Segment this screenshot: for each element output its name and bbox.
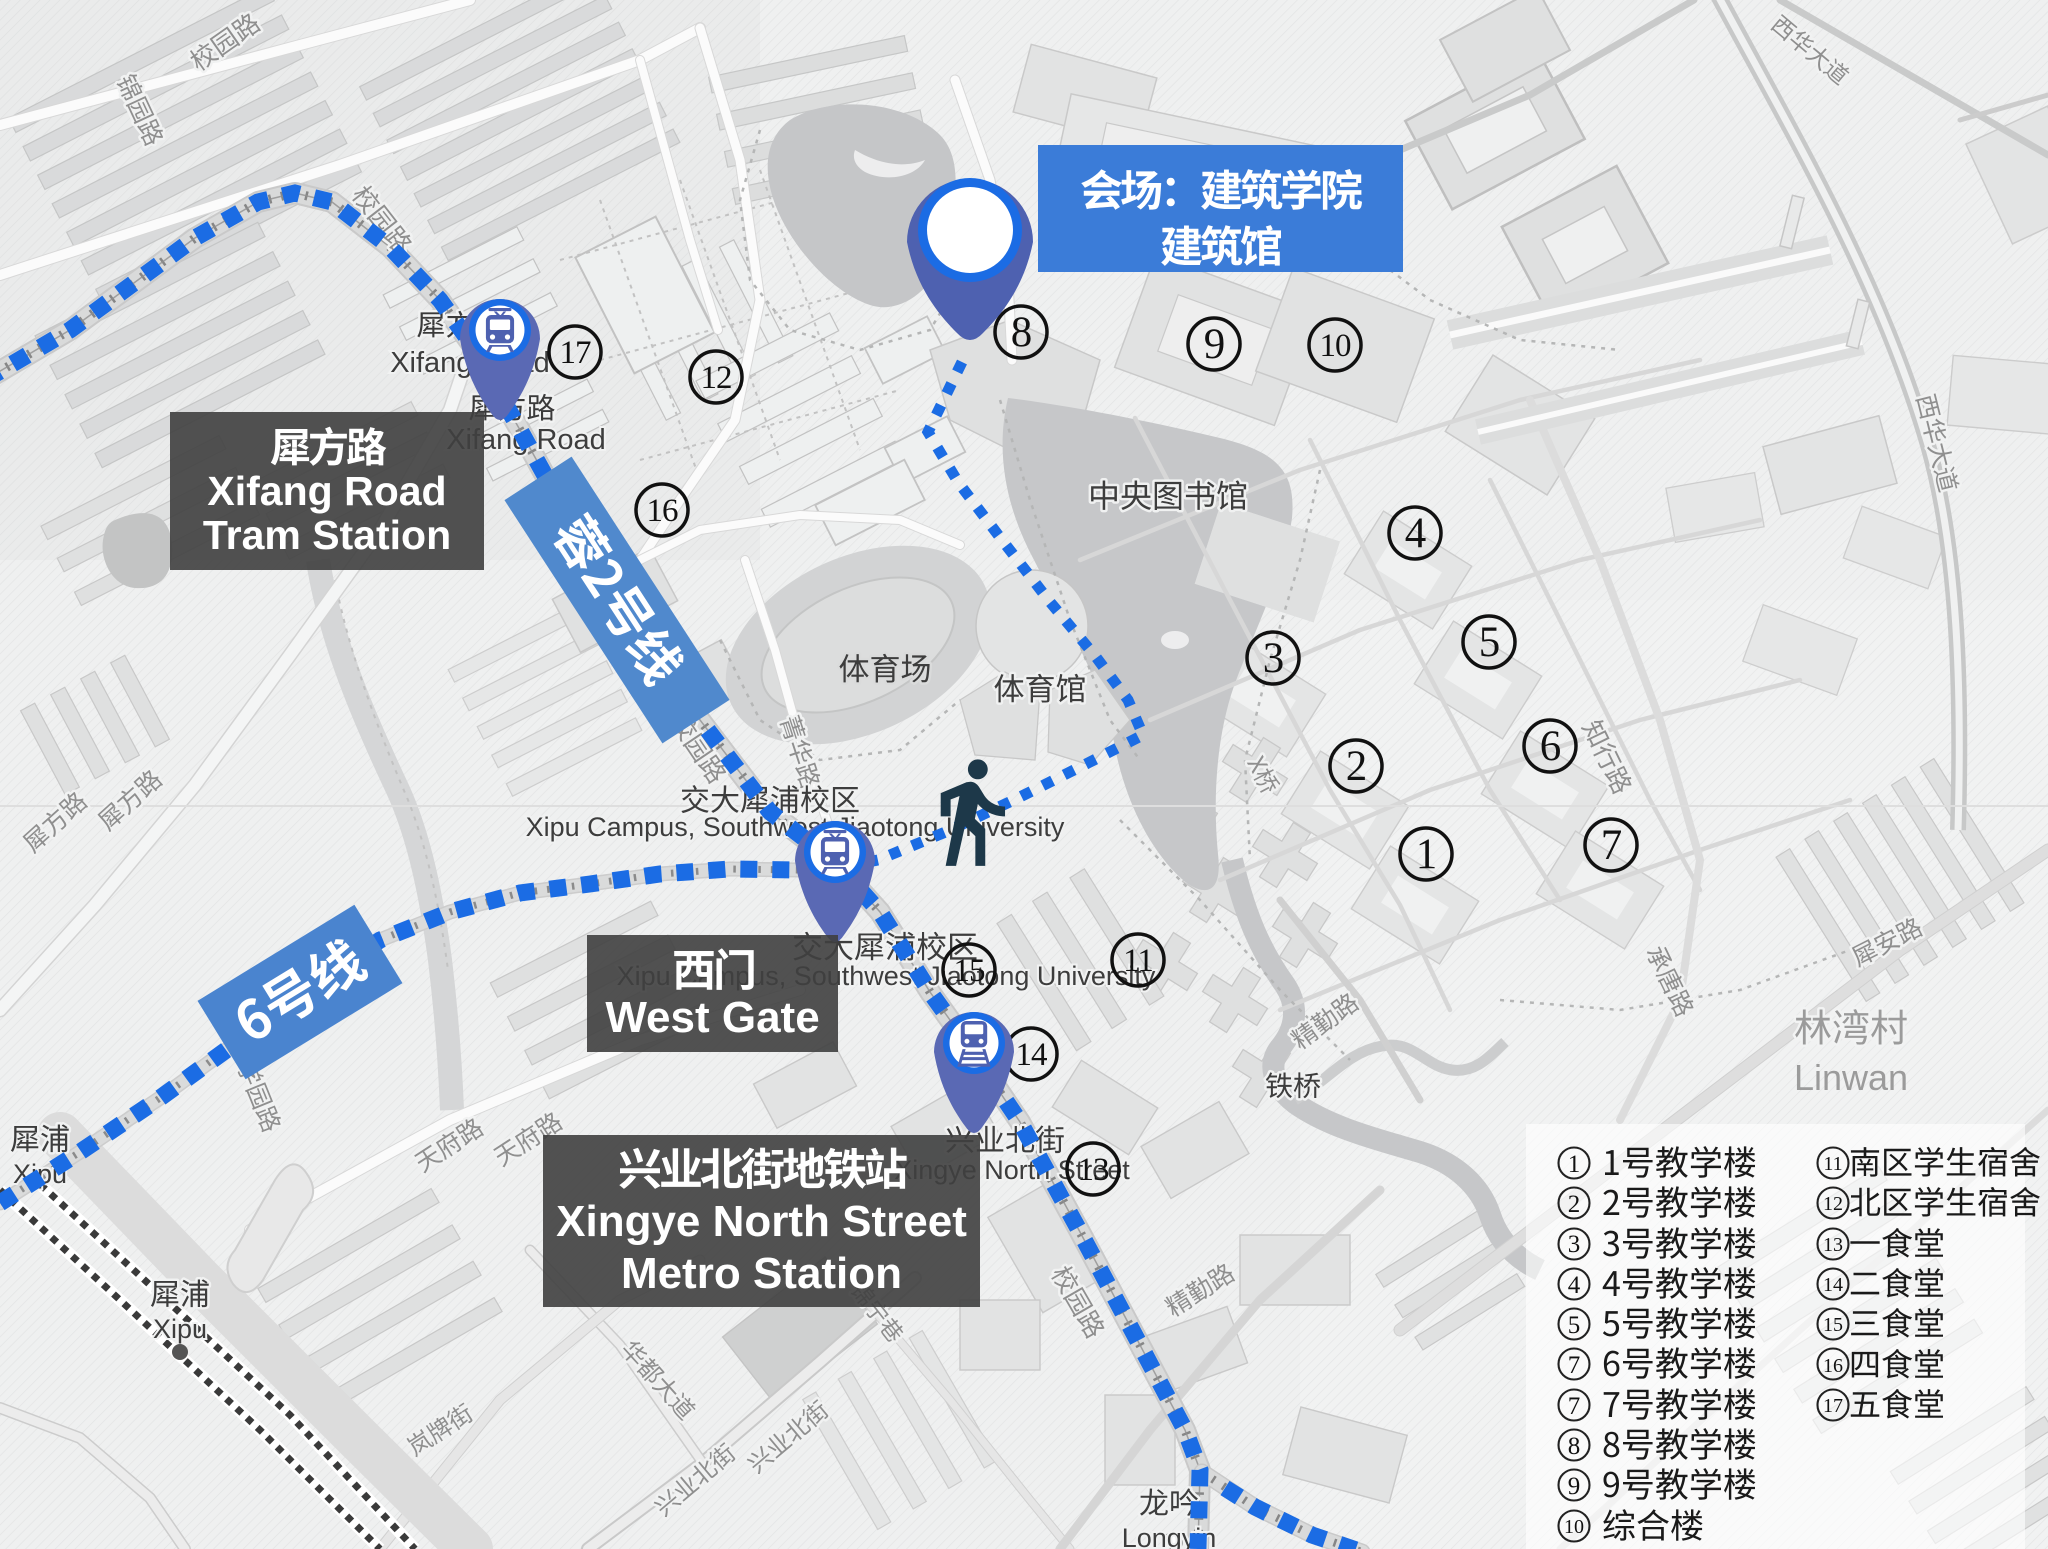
svg-text:11: 11 bbox=[1823, 1153, 1842, 1175]
svg-text:15: 15 bbox=[1823, 1314, 1843, 1336]
svg-text:8: 8 bbox=[1011, 309, 1032, 356]
svg-text:12: 12 bbox=[701, 360, 732, 396]
svg-text:6: 6 bbox=[1540, 723, 1561, 770]
svg-text:1: 1 bbox=[1416, 831, 1437, 878]
svg-text:5: 5 bbox=[1568, 1312, 1581, 1339]
svg-text:17: 17 bbox=[560, 335, 592, 371]
svg-text:16: 16 bbox=[647, 493, 679, 529]
svg-text:9: 9 bbox=[1568, 1473, 1581, 1500]
svg-text:3: 3 bbox=[1568, 1231, 1581, 1258]
svg-text:14: 14 bbox=[1823, 1274, 1843, 1296]
svg-text:7: 7 bbox=[1568, 1393, 1581, 1420]
svg-text:8: 8 bbox=[1568, 1433, 1581, 1460]
svg-text:13: 13 bbox=[1078, 1152, 1110, 1188]
svg-text:17: 17 bbox=[1823, 1395, 1843, 1417]
svg-text:Xipu: Xipu bbox=[153, 1314, 207, 1344]
svg-text:1: 1 bbox=[1568, 1151, 1581, 1178]
svg-text:Xingye North Street: Xingye North Street bbox=[556, 1197, 967, 1246]
svg-text:Linwan: Linwan bbox=[1794, 1057, 1908, 1098]
svg-text:7: 7 bbox=[1601, 822, 1622, 869]
svg-text:2: 2 bbox=[1568, 1191, 1581, 1218]
svg-text:2: 2 bbox=[1346, 743, 1367, 790]
svg-text:14: 14 bbox=[1016, 1037, 1048, 1073]
svg-text:5: 5 bbox=[1479, 619, 1500, 666]
svg-text:10: 10 bbox=[1320, 328, 1352, 364]
svg-text:4: 4 bbox=[1568, 1272, 1581, 1299]
svg-text:13: 13 bbox=[1823, 1234, 1843, 1256]
svg-text:16: 16 bbox=[1823, 1355, 1843, 1377]
svg-text:7: 7 bbox=[1568, 1352, 1581, 1379]
svg-text:4: 4 bbox=[1405, 510, 1426, 557]
svg-text:Tram Station: Tram Station bbox=[203, 512, 451, 558]
svg-text:15: 15 bbox=[954, 953, 986, 989]
svg-text:Xifang Road: Xifang Road bbox=[207, 468, 446, 514]
svg-text:West Gate: West Gate bbox=[605, 993, 819, 1042]
svg-text:3: 3 bbox=[1263, 635, 1284, 682]
svg-text:10: 10 bbox=[1564, 1516, 1584, 1538]
svg-text:9: 9 bbox=[1204, 321, 1225, 368]
svg-text:Metro Station: Metro Station bbox=[621, 1249, 902, 1298]
svg-text:11: 11 bbox=[1123, 943, 1153, 979]
svg-text:12: 12 bbox=[1823, 1193, 1843, 1215]
